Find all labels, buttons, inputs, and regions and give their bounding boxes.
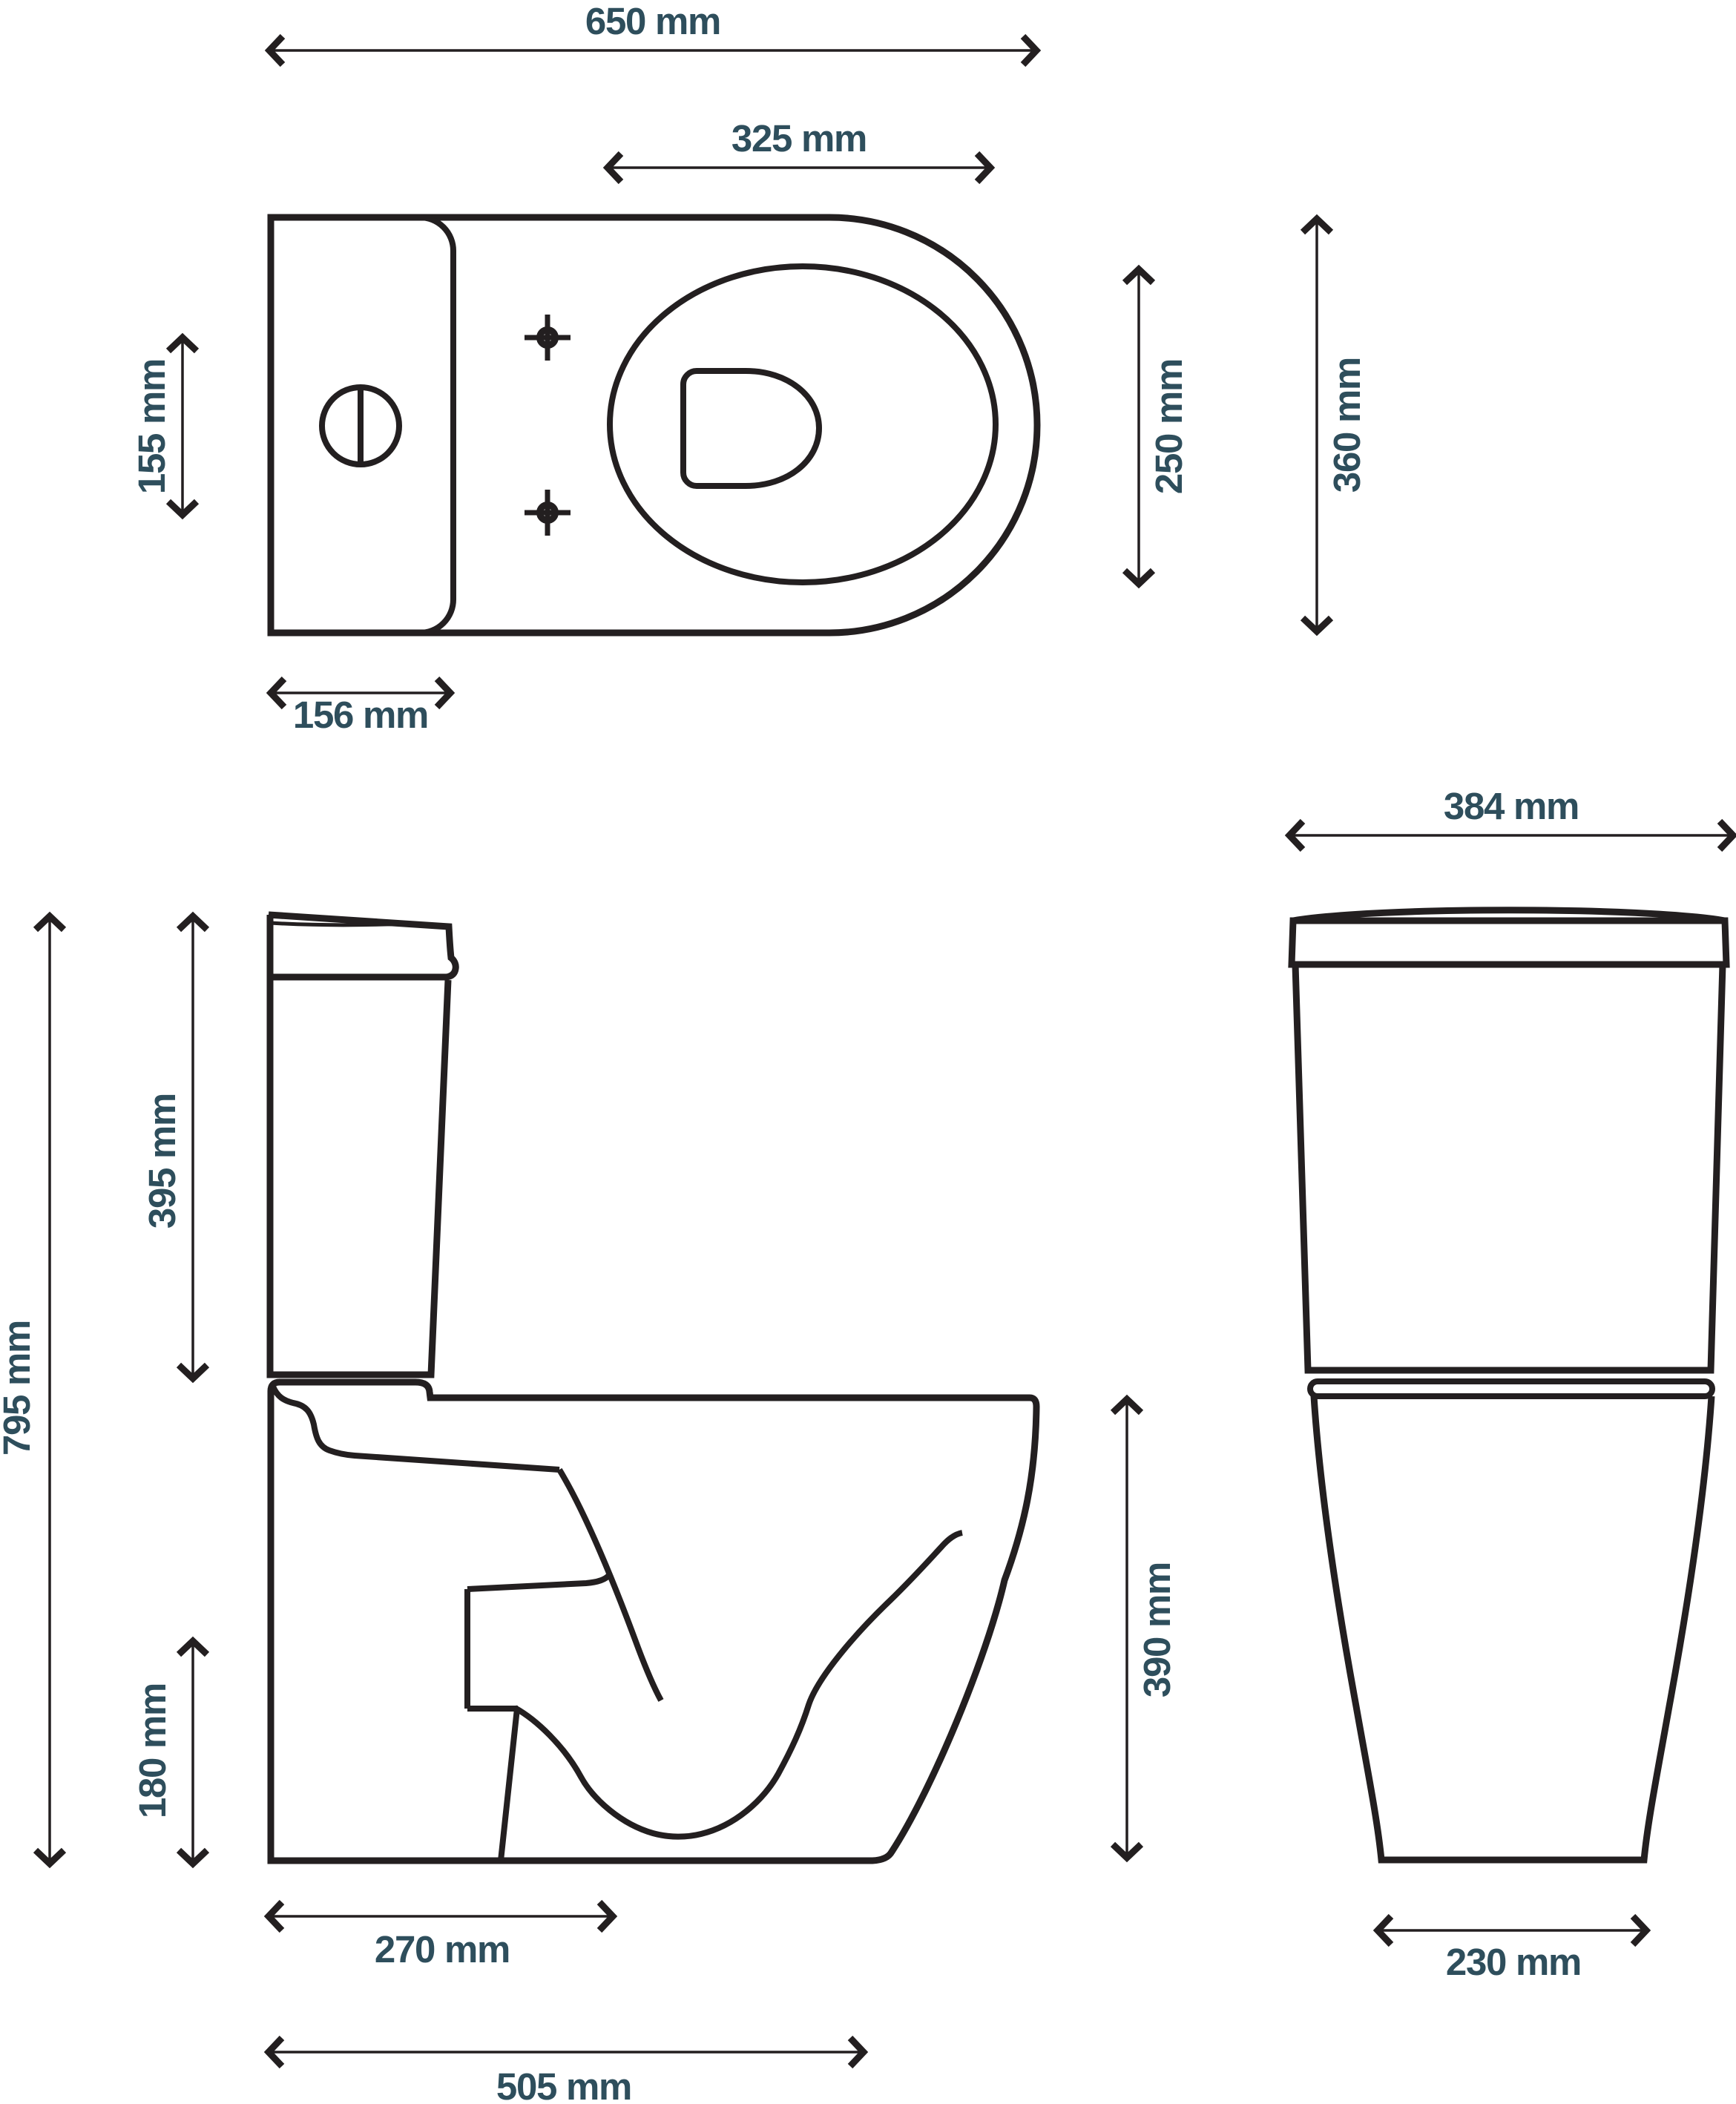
svg-text:270 mm: 270 mm bbox=[375, 1928, 510, 1970]
svg-text:650 mm: 650 mm bbox=[585, 0, 720, 42]
svg-text:230 mm: 230 mm bbox=[1446, 1941, 1581, 1983]
svg-text:250 mm: 250 mm bbox=[1148, 359, 1190, 494]
svg-text:180 mm: 180 mm bbox=[131, 1683, 174, 1818]
svg-text:325 mm: 325 mm bbox=[731, 117, 867, 160]
svg-text:384 mm: 384 mm bbox=[1444, 785, 1579, 827]
svg-text:360 mm: 360 mm bbox=[1326, 358, 1368, 493]
svg-text:155 mm: 155 mm bbox=[131, 359, 173, 494]
svg-text:395 mm: 395 mm bbox=[141, 1094, 183, 1229]
svg-text:505 mm: 505 mm bbox=[496, 2065, 631, 2104]
svg-text:390 mm: 390 mm bbox=[1136, 1562, 1178, 1697]
svg-text:795 mm: 795 mm bbox=[0, 1321, 38, 1456]
svg-text:156 mm: 156 mm bbox=[293, 694, 428, 736]
